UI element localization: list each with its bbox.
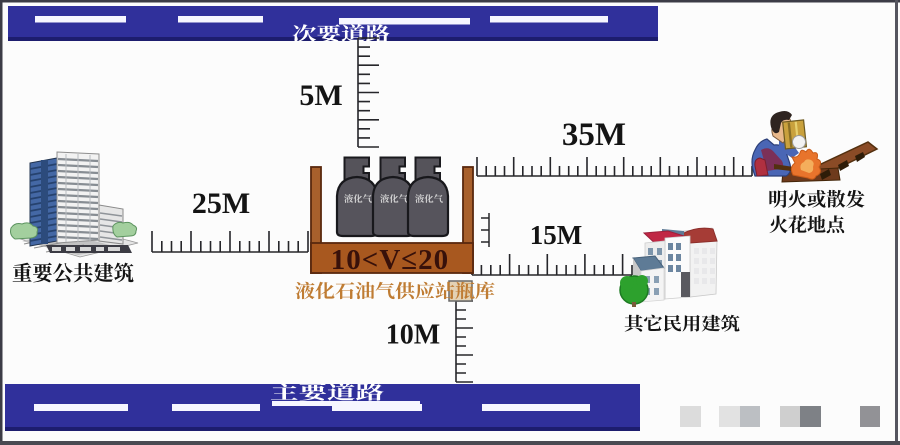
svg-text:10M: 10M [386, 320, 440, 351]
svg-text:5M: 5M [299, 79, 342, 112]
svg-text:10<V≤20: 10<V≤20 [331, 244, 449, 276]
svg-text:25M: 25M [192, 187, 250, 220]
svg-text:15M: 15M [530, 220, 582, 250]
svg-text:35M: 35M [562, 117, 626, 153]
